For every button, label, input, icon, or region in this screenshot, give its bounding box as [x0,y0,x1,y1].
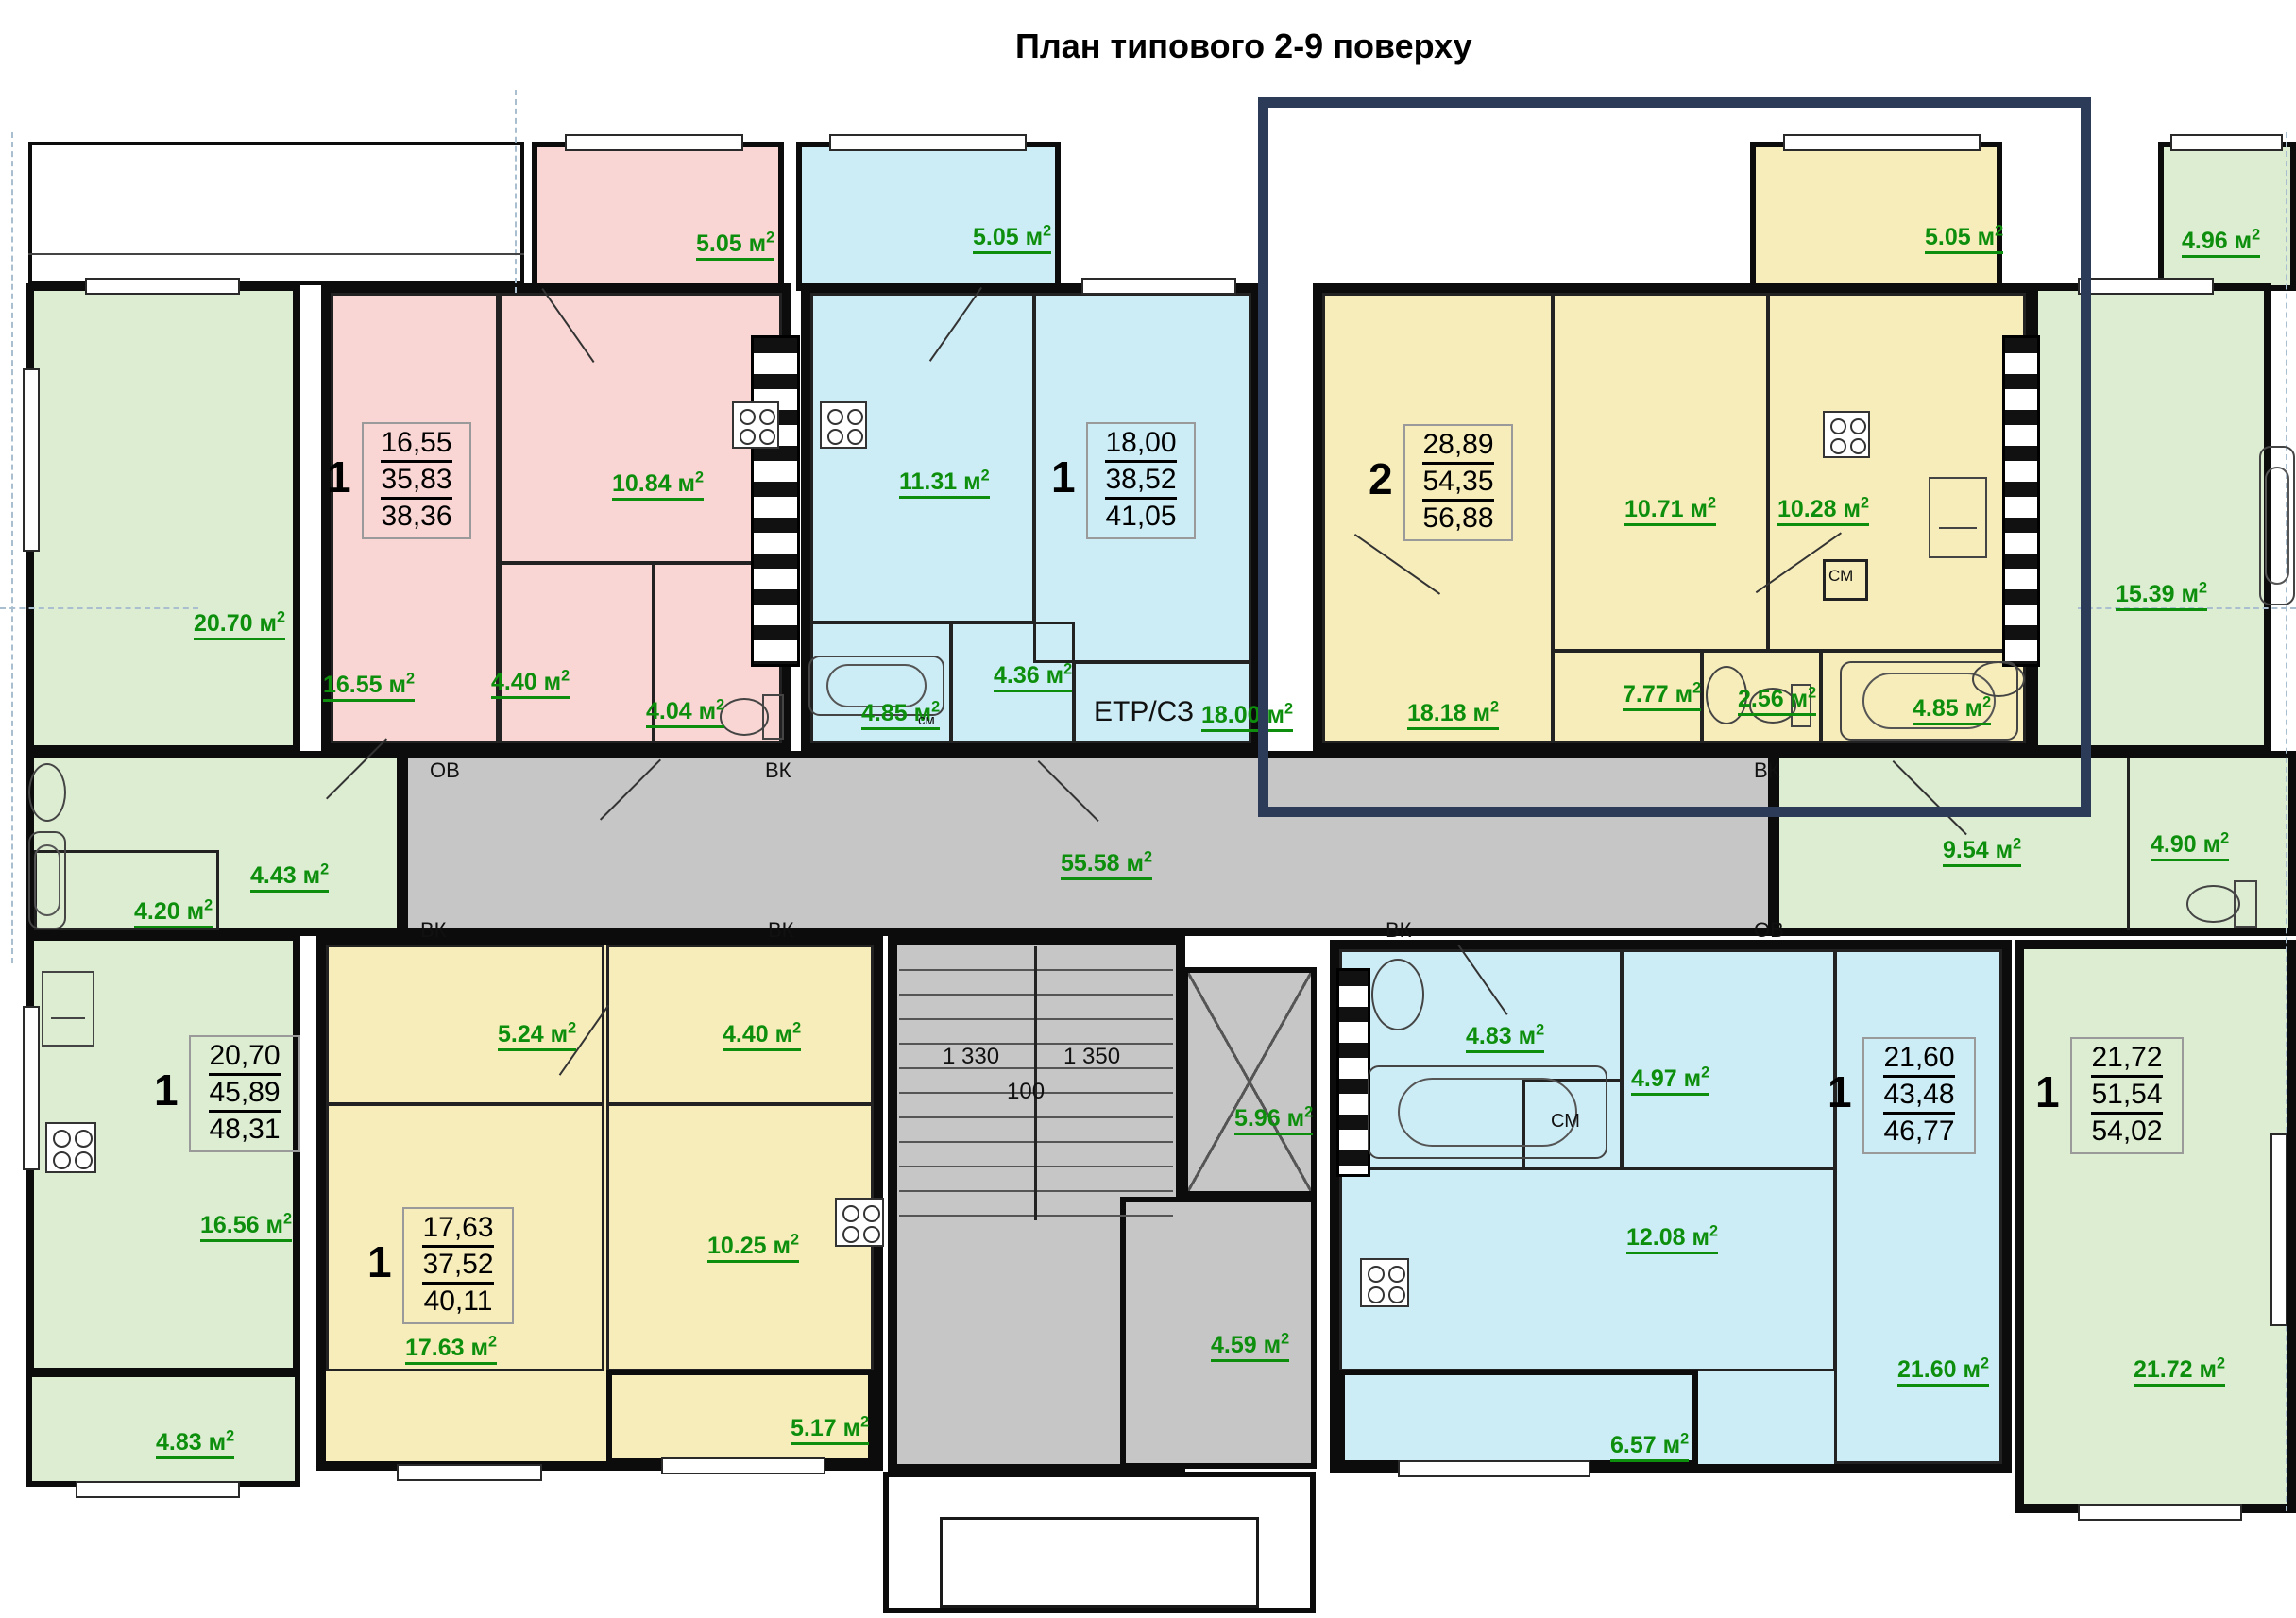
axis-line [0,607,198,609]
wall-line [2127,758,2130,930]
stove-icon [820,401,867,449]
apartment-rooms-count: 1 [367,1236,392,1287]
window [85,278,240,295]
apartment-rooms-count: 1 [1051,451,1076,502]
area-label: 16.56 м2 [200,1211,292,1239]
area-label: 5.17 м2 [791,1414,869,1442]
area-label: 4.83 м2 [156,1428,234,1456]
area-label: 4.97 м2 [1631,1064,1709,1093]
terrace-rail-line [28,253,524,255]
room-green-living-left [26,283,300,753]
area-label: 17.63 м2 [405,1334,497,1362]
area-label: 10.25 м2 [707,1232,799,1260]
axis-line [11,132,13,963]
riser-shaft [1336,968,1370,1177]
room-pink-hall [499,562,655,743]
toilet-icon [720,694,784,736]
area-label: 20.70 м2 [194,609,285,638]
window [397,1464,542,1481]
room-bblue-kitchen [1339,1167,1836,1371]
small-label-: СМ [1551,1111,1580,1133]
area-label: 55.58 м2 [1061,849,1152,877]
area-label: 11.31 м2 [899,468,990,496]
area-label: 10.84 м2 [612,469,704,498]
page-title: План типового 2-9 поверху [1015,26,1472,66]
area-label: 4.59 м2 [1211,1331,1289,1359]
balcony-blue [796,142,1061,291]
apartment-summary-box: 21,7251,5454,02 [2070,1037,2184,1154]
window [2078,1504,2242,1521]
area-label: 4.90 м2 [2151,830,2229,859]
bathtub-icon [2259,446,2295,605]
area-label: 5.05 м2 [696,230,774,258]
area-label: 4.96 м2 [2182,227,2260,255]
stove-icon [45,1122,96,1173]
area-label: 21.60 м2 [1897,1355,1989,1384]
area-label: 4.40 м2 [491,668,570,696]
elevator-shaft [1182,967,1317,1197]
small-label-1330: 1 330 [943,1044,999,1070]
window [661,1457,825,1474]
sink-icon [28,763,66,822]
room-bblue-living [1834,949,2002,1464]
window [2078,278,2214,295]
small-label-: ВК [1386,918,1412,943]
window [23,1006,40,1170]
area-label: 15.39 м2 [2116,580,2207,608]
window [23,368,40,552]
area-label: 12.08 м2 [1626,1223,1718,1252]
window [2170,134,2283,151]
area-label: 4.83 м2 [1466,1022,1544,1050]
toilet-icon [2186,880,2257,924]
room-blue-kitchen [810,293,1035,623]
floor-plan-canvas: План типового 2-9 поверху [0,0,2296,1618]
stove-icon [1360,1258,1409,1307]
small-label-: ОВ [430,758,460,783]
axis-line [515,90,517,293]
apartment-green-bottom-right [2015,940,2296,1513]
window [565,134,743,151]
area-label: 4.04 м2 [646,697,724,725]
area-label: 16.55 м2 [323,671,415,699]
window [829,134,1027,151]
area-label: 9.54 м2 [1943,836,2021,864]
apartment-summary-box: 18,0038,5241,05 [1086,422,1196,539]
entrance-steps [940,1517,1259,1608]
stove-icon [732,401,779,449]
room-bblue-hall [1621,949,1836,1169]
apartment-rooms-count: 1 [327,451,351,502]
area-label: 4.36 м2 [994,661,1072,690]
riser-shaft [751,335,800,667]
apartment-rooms-count: 1 [2035,1066,2060,1117]
balcony-pink [532,142,784,291]
terrace-outline [28,142,524,285]
apartment-rooms-count: 1 [1828,1066,1852,1117]
apartment-rooms-count: 1 [154,1064,179,1116]
sink-icon [1371,959,1424,1030]
window [1081,278,1236,295]
apartment-summary-box: 16,5535,8338,36 [362,422,471,539]
small-label-100: 100 [1007,1079,1045,1105]
small-label-: ОВ [1754,918,1784,943]
area-label: 5.24 м2 [498,1020,576,1048]
area-label: 6.57 м2 [1610,1431,1689,1459]
area-label: 4.40 м2 [723,1020,801,1048]
fridge-icon [42,971,94,1047]
balcony-green-right [2158,142,2296,291]
window [76,1481,240,1498]
area-label: 5.96 м2 [1234,1104,1313,1133]
stove-icon [835,1198,884,1247]
small-label-: ВК [420,918,447,943]
apartment-summary-box: 17,6337,5240,11 [402,1207,514,1324]
small-label-: см [918,712,935,728]
bathtub-icon [28,831,66,929]
small-label-1350: 1 350 [1063,1044,1120,1070]
window [2270,1133,2287,1326]
apartment-summary-box: 21,6043,4846,77 [1862,1037,1976,1154]
small-label-: ВК [765,758,791,783]
area-label: 5.05 м2 [973,223,1051,251]
highlight-box-apartment-2 [1258,97,2091,817]
area-label: 21.72 м2 [2134,1355,2225,1384]
area-label: 4.20 м2 [134,897,213,926]
window [1398,1460,1590,1477]
small-label-: ВК [768,918,794,943]
apartment-summary-box: 20,7045,8948,31 [189,1035,300,1152]
small-label-: ЕТР/СЗ [1094,696,1194,728]
area-label: 4.43 м2 [250,861,329,890]
